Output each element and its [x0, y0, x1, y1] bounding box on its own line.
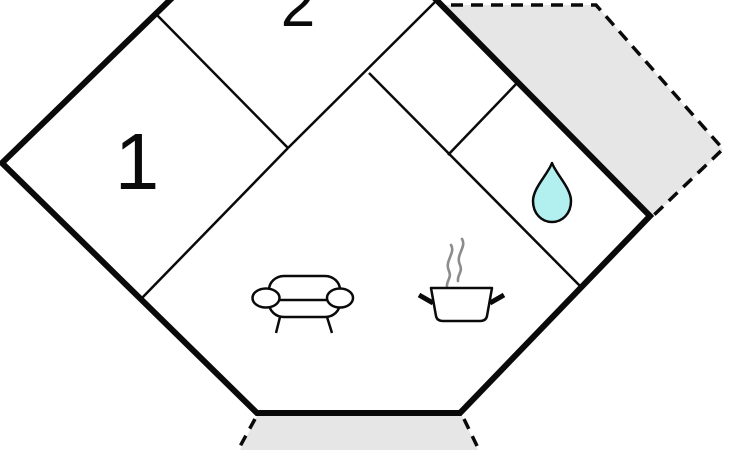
- terrace-bottom-fill: [240, 414, 478, 450]
- sofa-armrest-right: [327, 289, 353, 308]
- pot-body: [431, 288, 492, 321]
- sofa-armrest-left: [253, 289, 280, 308]
- terrace-bottom: [238, 414, 479, 450]
- floor-plan-drawing: 1 2: [0, 0, 730, 450]
- floor-plan: 1 2: [0, 0, 730, 450]
- room-2-label: 2: [281, 0, 315, 40]
- room-1-label: 1: [115, 117, 160, 206]
